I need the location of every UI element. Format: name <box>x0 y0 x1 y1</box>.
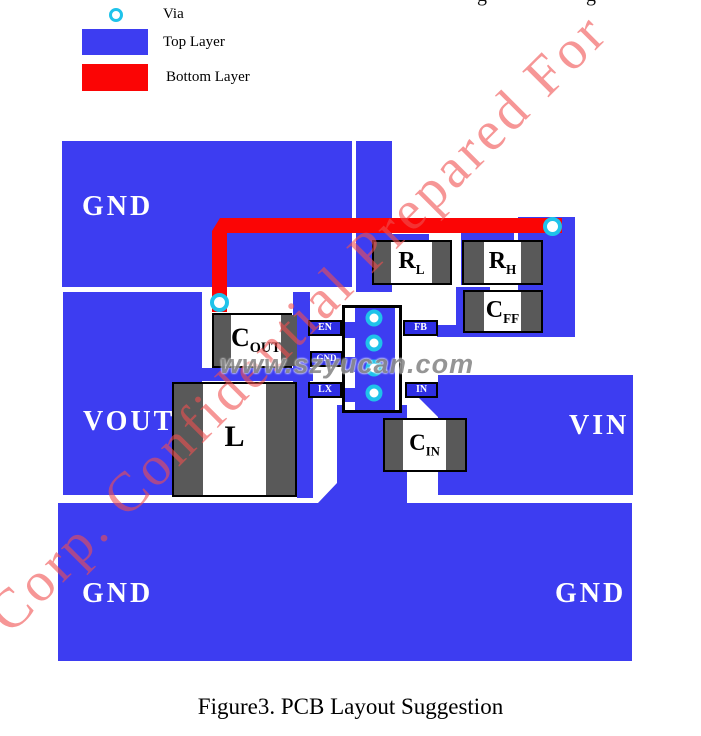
vin-tongue <box>418 397 438 417</box>
component-cout: COUT <box>212 313 292 368</box>
cin-label: CIN <box>409 431 440 458</box>
pin-lx: LX <box>308 382 342 398</box>
chip-via-2 <box>366 335 383 352</box>
pcb-layout-figure: Via Top Layer Bottom Layer GND VOUT VIN … <box>0 0 701 736</box>
legend-bottom-layer-label: Bottom Layer <box>166 69 250 86</box>
legend-bottom-layer-swatch <box>82 64 148 91</box>
rh-right-pad <box>521 242 541 283</box>
vin-plane: VIN <box>438 375 633 495</box>
l-right-pad <box>266 384 295 495</box>
l-left-pad <box>174 384 203 495</box>
gnd-top-label: GND <box>82 191 153 223</box>
lx-strip <box>297 390 313 498</box>
legend-top-layer-label: Top Layer <box>163 34 225 51</box>
chip-via-3 <box>366 360 383 377</box>
pin-fb: FB <box>403 320 438 336</box>
chip-via-4 <box>366 385 383 402</box>
top-edge-fragment-left: g <box>477 0 487 7</box>
component-cin: CIN <box>383 418 467 472</box>
rh-label: RH <box>489 249 517 276</box>
pin-in: IN <box>405 382 438 398</box>
pin-gnd: GND <box>310 351 343 367</box>
cff-right-pad <box>521 292 541 331</box>
legend-via-icon <box>109 8 123 22</box>
cin-right-pad <box>446 420 465 470</box>
cout-right-pad <box>281 315 297 366</box>
chip-via-1 <box>366 310 383 327</box>
via-output <box>210 293 229 312</box>
gnd-bottom-right-label: GND <box>555 578 626 610</box>
component-cff: CFF <box>463 290 543 333</box>
via-feedback <box>543 217 562 236</box>
cin-left-pad <box>385 420 403 470</box>
legend-top-layer-swatch <box>82 29 148 55</box>
cout-left-pad <box>214 315 231 366</box>
component-rh: RH <box>462 240 543 285</box>
vout-label: VOUT <box>83 406 175 438</box>
figure-caption: Figure3. PCB Layout Suggestion <box>0 694 701 720</box>
chip-left-tab-lx <box>345 388 355 402</box>
chip-left-tab-en <box>345 322 355 338</box>
gnd-top-plane: GND <box>62 141 352 287</box>
gnd-bottom-left-label: GND <box>82 578 153 610</box>
ic-chip <box>342 305 402 413</box>
cout-label: COUT <box>231 325 281 355</box>
rh-left-pad <box>464 242 484 283</box>
vin-label: VIN <box>569 410 629 442</box>
l-label: L <box>224 422 244 457</box>
chip-left-tab-gnd <box>345 357 355 372</box>
component-rl: RL <box>372 240 452 285</box>
component-l: L <box>172 382 297 497</box>
rl-left-pad <box>374 242 391 283</box>
legend-via-label: Via <box>163 6 184 23</box>
rl-label: RL <box>398 249 424 276</box>
cff-label: CFF <box>486 298 519 325</box>
cff-left-pad <box>465 292 484 331</box>
pin-en: EN <box>308 320 342 336</box>
rl-right-pad <box>432 242 450 283</box>
gnd-bottom-plane: GND GND <box>58 503 632 661</box>
top-edge-fragment-right: g <box>586 0 596 7</box>
